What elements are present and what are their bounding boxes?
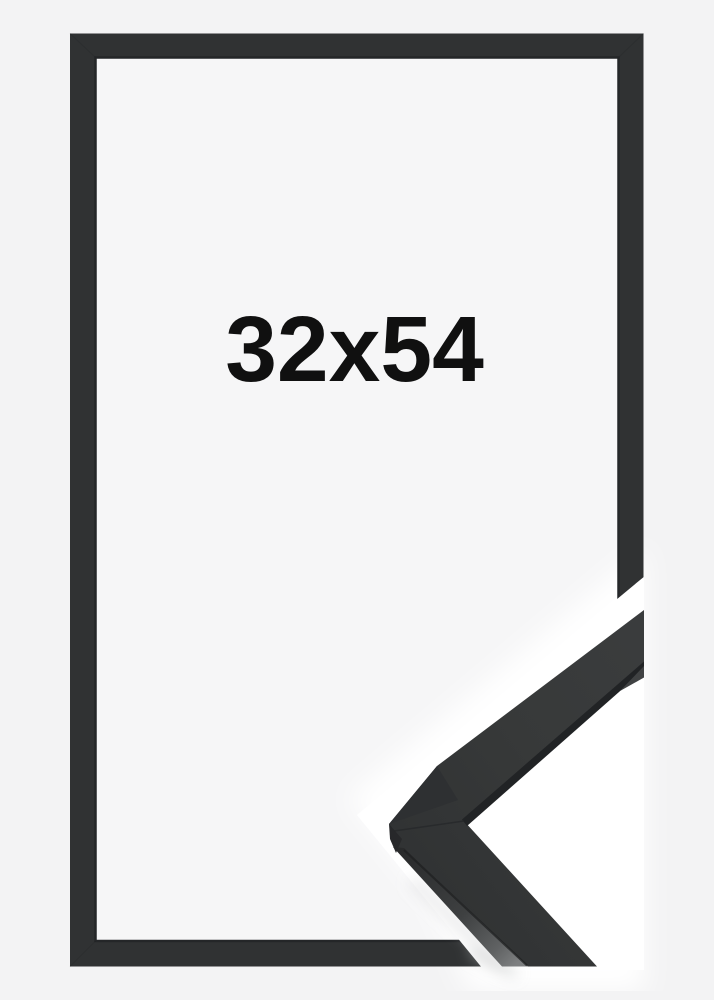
- svg-text:32x54: 32x54: [225, 297, 484, 401]
